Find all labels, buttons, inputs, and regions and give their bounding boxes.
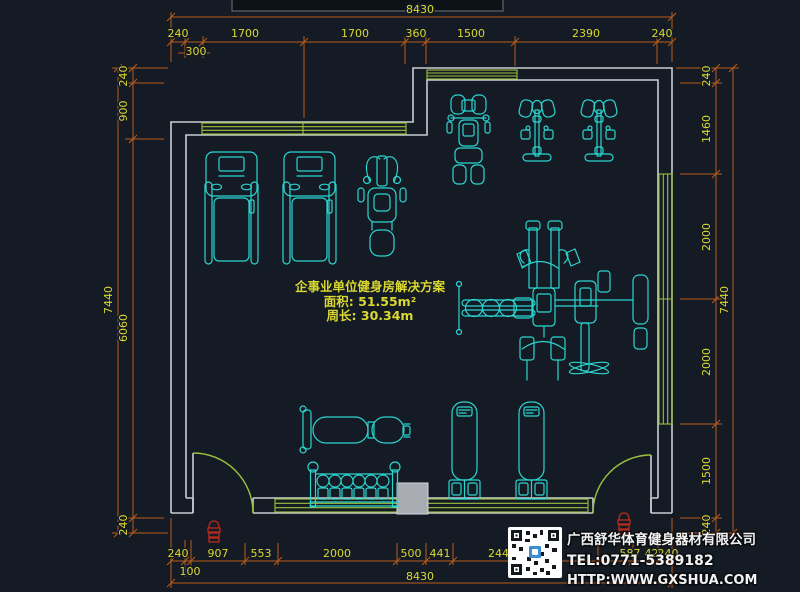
dim-left-0: 240	[117, 66, 130, 87]
window-top-right	[427, 70, 517, 79]
spin-bike-2	[580, 99, 618, 161]
plan-title-block: 企事业单位健身房解决方案 面积: 51.55m² 周长: 30.34m	[294, 279, 446, 323]
plan-perimeter: 周长: 30.34m	[327, 308, 414, 323]
dim-top-1: 300	[186, 45, 207, 58]
boxing-bag-station-2	[516, 402, 547, 499]
spin-bike-1	[518, 99, 556, 161]
dim-bottom-5: 500	[401, 547, 422, 560]
dim-left-2: 6060	[117, 314, 130, 342]
dim-bottom-4: 2000	[323, 547, 351, 560]
floor-plan-drawing: 8430 240 300 1700 1700 360 1500 2390 240…	[0, 0, 800, 592]
qr-code	[508, 527, 562, 578]
cad-viewport: 8430 240 300 1700 1700 360 1500 2390 240…	[0, 0, 800, 592]
plan-area: 面积: 51.55m²	[324, 294, 416, 309]
company-info: 广西舒华体育健身器材有限公司 TEL:0771-5389182 HTTP:WWW…	[567, 531, 757, 588]
fire-hydrant-icon-left	[208, 521, 220, 542]
window-top-left	[202, 123, 406, 134]
company-website: HTTP:WWW.GXSHUA.COM	[567, 573, 757, 588]
dim-top-0: 240	[168, 27, 189, 40]
dim-right-3: 2000	[700, 348, 713, 376]
dim-right-0: 240	[700, 66, 713, 87]
dim-bottom-1: 100	[180, 565, 201, 578]
dim-right-4: 1500	[700, 457, 713, 485]
fire-hydrant-icon-right	[618, 513, 630, 534]
treadmill-2	[283, 152, 336, 264]
dim-top-4: 360	[406, 27, 427, 40]
dim-overall-top: 8430	[406, 3, 434, 16]
dumbbell-rack	[308, 462, 400, 507]
dim-bottom-6: 441	[430, 547, 451, 560]
dim-top-7: 240	[652, 27, 673, 40]
dim-left-1: 900	[117, 101, 130, 122]
dim-right-2: 2000	[700, 223, 713, 251]
leg-press-machine	[447, 95, 490, 184]
dim-left-3: 240	[117, 515, 130, 536]
massage-vibration-machine	[300, 406, 410, 453]
treadmill-1	[205, 152, 258, 264]
company-name: 广西舒华体育健身器材有限公司	[567, 531, 756, 548]
dim-overall-left: 7440	[102, 286, 115, 314]
window-right	[659, 174, 672, 424]
door-right	[593, 455, 651, 513]
dim-bottom-2: 907	[208, 547, 229, 560]
dim-bottom-0: 240	[168, 547, 189, 560]
plan-title: 企事业单位健身房解决方案	[294, 279, 446, 294]
boxing-bag-station-1	[449, 402, 480, 499]
seated-strength-machine	[358, 156, 406, 256]
dim-overall-bottom: 8430	[406, 570, 434, 583]
company-tel: TEL:0771-5389182	[567, 553, 714, 569]
door-left	[193, 453, 253, 513]
dim-bottom-3: 553	[251, 547, 272, 560]
structural-column	[397, 483, 428, 514]
dim-top-6: 2390	[572, 27, 600, 40]
dim-top-3: 1700	[341, 27, 369, 40]
dim-overall-right: 7440	[718, 286, 731, 314]
dim-top-2: 1700	[231, 27, 259, 40]
dim-right-1: 1460	[700, 115, 713, 143]
dim-top-5: 1500	[457, 27, 485, 40]
cropped-top-panel	[232, 0, 503, 11]
multi-station-gym	[457, 221, 649, 380]
